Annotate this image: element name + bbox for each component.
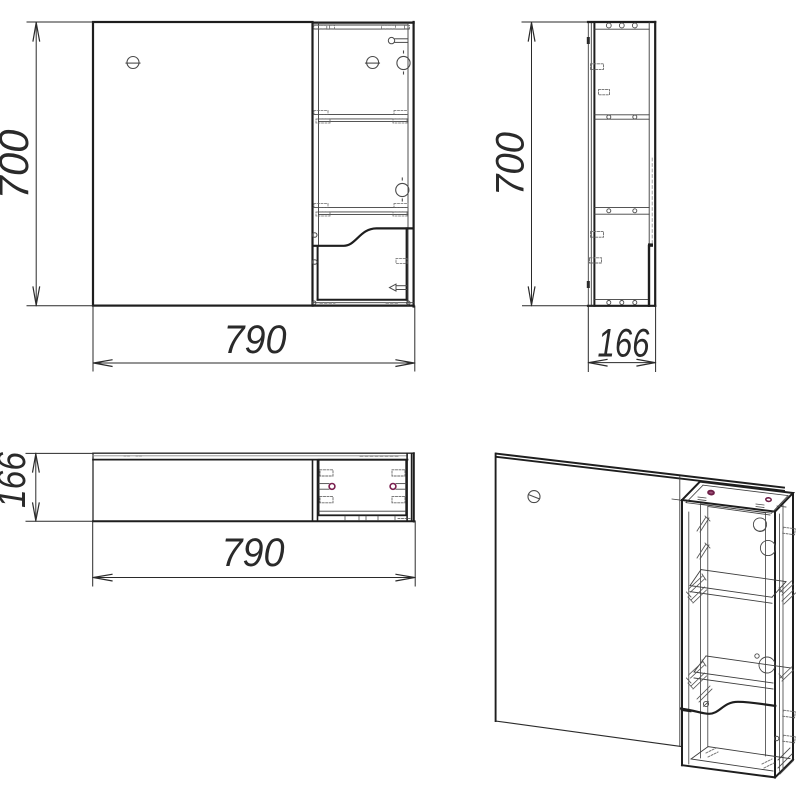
- svg-text:700: 700: [0, 129, 37, 200]
- svg-text:790: 790: [224, 318, 287, 362]
- svg-text:790: 790: [222, 531, 285, 575]
- svg-text:166: 166: [598, 322, 651, 366]
- svg-text:700: 700: [489, 132, 533, 196]
- svg-text:166: 166: [0, 451, 34, 508]
